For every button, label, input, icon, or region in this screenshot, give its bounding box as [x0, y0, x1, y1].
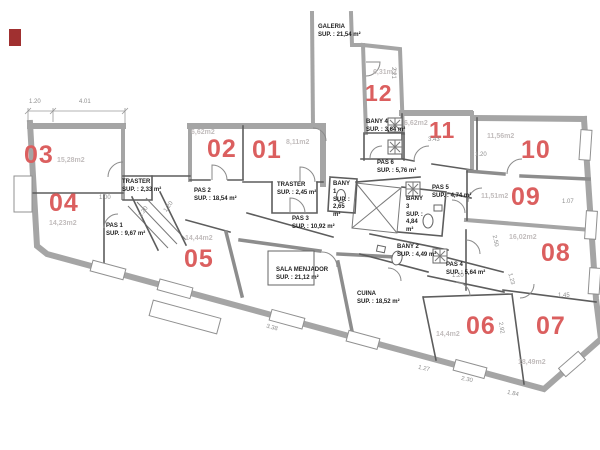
red-marker	[9, 29, 21, 46]
dim-label: 1.45	[558, 293, 570, 299]
dim-label: 1.20	[475, 152, 487, 158]
stairs-box	[352, 183, 401, 233]
window	[588, 268, 600, 295]
door-arc	[370, 146, 382, 158]
door-arc	[322, 252, 337, 267]
room-area-04: 14,23m2	[49, 220, 77, 227]
wall	[503, 290, 596, 302]
wall-galeria	[312, 13, 313, 127]
window	[90, 260, 126, 280]
dim-label: 1.20	[29, 99, 41, 105]
room-number-03: 03	[24, 143, 54, 168]
space-label-bany-4: BANY 4SUP. : 3,64 m²	[366, 119, 405, 135]
window	[579, 130, 592, 161]
balcony-step	[149, 300, 221, 334]
door-arc	[108, 162, 123, 177]
space-label-bany-3: BANY 3SUP. : 4,84 m²	[406, 196, 426, 235]
window	[559, 351, 586, 376]
room-area-11: 6,62m2	[404, 120, 428, 127]
space-label-bany-2: BANY 2SUP. : 4,49 m²	[397, 244, 436, 260]
wall	[186, 220, 230, 232]
space-label-sala-menjador: SALA MENJADORSUP. : 21,12 m²	[276, 267, 328, 283]
door-arc	[290, 198, 305, 213]
dimension-line	[25, 108, 128, 124]
wall	[338, 262, 352, 331]
room-area-08: 16,02m2	[509, 234, 537, 241]
window	[346, 330, 380, 349]
room-area-03: 15,28m2	[57, 157, 85, 164]
dim-label: 4.01	[79, 99, 91, 105]
space-label-galeria: GALERIASUP. : 21,54 m²	[318, 24, 361, 40]
space-label-traster-1: TRASTERSUP. : 2,33 m²	[122, 179, 161, 195]
space-label-cuina: CUINASUP. : 18,52 m²	[357, 291, 400, 307]
space-label-pas-5: PAS 5SUP. : 4,74 m²	[432, 185, 471, 201]
space-label-pas-3: PAS 3SUP. : 10,92 m²	[292, 216, 335, 232]
dim-label: 1.20	[452, 273, 464, 279]
dim-label: 3.43	[428, 137, 440, 143]
dim-label: 1.07	[562, 199, 574, 205]
door-arc	[212, 165, 227, 180]
space-label-traster-2: TRASTERSUP. : 2,45 m²	[277, 182, 316, 198]
room-number-06: 06	[466, 314, 496, 339]
door-arc	[300, 167, 315, 182]
space-label-bany-1: BANY 1SUP. : 2,65 m²	[333, 181, 353, 220]
window	[157, 279, 193, 299]
door-arc	[507, 159, 522, 174]
sink	[376, 245, 385, 253]
room-area-01: 8,11m2	[286, 139, 309, 146]
door-arc	[414, 146, 429, 161]
room-area-02: 6,62m2	[191, 129, 215, 136]
room-number-08: 08	[541, 241, 571, 266]
wall	[356, 177, 420, 182]
room-area-09: 11,51m2	[481, 193, 508, 200]
room-number-01: 01	[252, 138, 282, 163]
room-area-07: 18,49m2	[518, 359, 546, 366]
window	[453, 359, 487, 378]
dim-label: 2.21	[390, 67, 396, 79]
fan-icon	[388, 140, 402, 154]
door-arc	[452, 200, 465, 213]
wall	[477, 118, 584, 119]
wall	[30, 119, 600, 389]
room-number-05: 05	[184, 247, 214, 272]
sink	[434, 205, 442, 211]
space-label-pas-6: PAS 6SUP. : 5,76 m²	[377, 160, 416, 176]
room-area-05: 14,44m2	[185, 235, 213, 242]
room-number-10: 10	[521, 138, 551, 163]
room-number-07: 07	[536, 314, 566, 339]
space-label-pas-2: PAS 2SUP. : 18,54 m²	[194, 188, 237, 204]
wall	[466, 220, 591, 230]
fan-icon	[406, 182, 420, 196]
wall	[240, 240, 396, 257]
door-arc	[466, 240, 480, 254]
window	[14, 176, 32, 212]
space-label-pas-1: PAS 1SUP. : 9,67 m²	[106, 223, 145, 239]
room-number-04: 04	[49, 191, 79, 216]
dim-label: 1.00	[99, 195, 111, 201]
room-number-12: 12	[365, 82, 393, 105]
room-number-09: 09	[511, 185, 541, 210]
door-arc	[388, 268, 401, 281]
floorplan-page: 01 02 03 04 05 06 07 08 09 10 11 12 8,11…	[0, 0, 600, 450]
room-area-06: 14,4m2	[436, 331, 460, 338]
window	[585, 211, 598, 240]
wall	[468, 171, 589, 179]
room-area-10: 11,56m2	[487, 133, 514, 140]
door-arc	[520, 284, 534, 298]
room-number-02: 02	[207, 137, 237, 162]
